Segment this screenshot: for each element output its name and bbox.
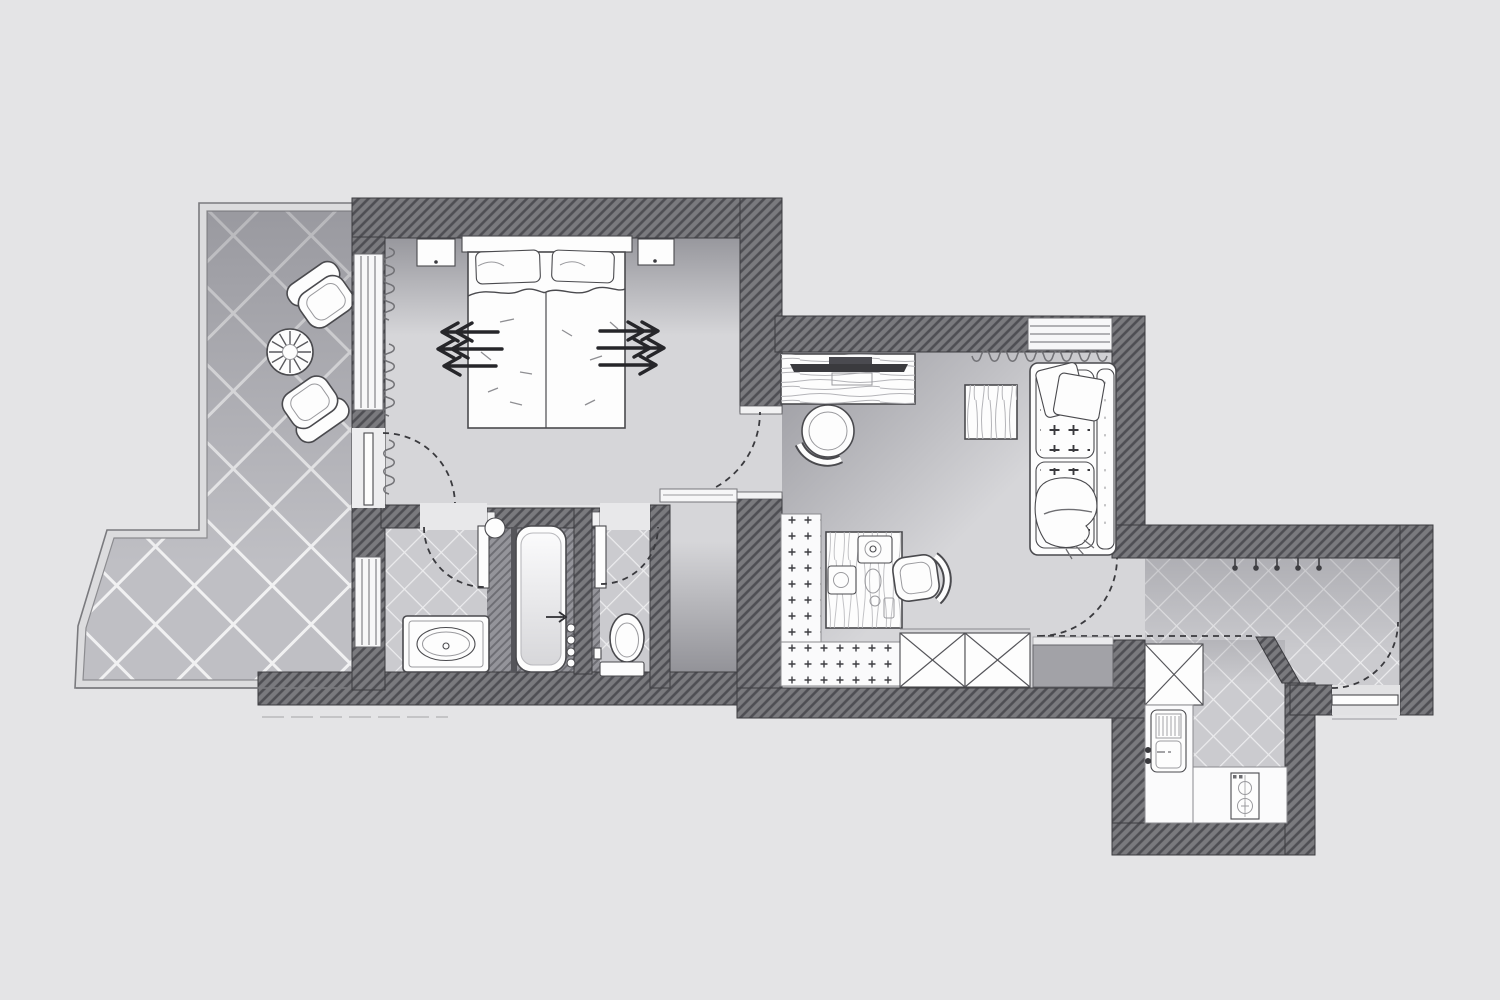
vanity-door-leaf bbox=[478, 526, 489, 588]
coffee-machine-1-button bbox=[870, 546, 876, 552]
bed-arrows-right bbox=[598, 322, 664, 374]
sink-knob-1 bbox=[1145, 747, 1151, 753]
living-window bbox=[1028, 318, 1112, 350]
sofa-throw-blanket bbox=[1035, 478, 1097, 548]
inner-hall-shading bbox=[670, 505, 737, 688]
tub-knob-4 bbox=[567, 659, 575, 667]
wall-wc-right bbox=[650, 505, 670, 688]
tub-knob-1 bbox=[567, 624, 575, 632]
wall-end-cap bbox=[592, 512, 600, 526]
kitchen-sink-unit bbox=[1145, 710, 1186, 772]
entrance-door-leaf bbox=[1332, 695, 1398, 705]
bed-headboard bbox=[462, 236, 632, 252]
floor-plan-canvas bbox=[0, 0, 1500, 1000]
coffee-table bbox=[965, 385, 1017, 439]
side-chair bbox=[891, 553, 947, 603]
rug-horizontal-pattern bbox=[781, 642, 901, 686]
toilet-paper-holder bbox=[594, 648, 601, 659]
bed-pillow-left bbox=[475, 250, 540, 284]
tub-stool bbox=[485, 518, 505, 538]
tv-desk-group bbox=[781, 354, 915, 404]
tv-screen-bar bbox=[790, 364, 908, 372]
terrace-wicker-table bbox=[267, 329, 313, 375]
minibar-table-group bbox=[826, 532, 902, 628]
vanity-drain bbox=[443, 643, 449, 649]
desk-chair-seat bbox=[802, 405, 854, 457]
wall-living-right-upper bbox=[1112, 316, 1145, 558]
wall-hall-top bbox=[1112, 525, 1433, 558]
terrace-door-leaf bbox=[364, 433, 373, 505]
coffee-table-woodgrain bbox=[965, 385, 1017, 439]
sofa-group bbox=[1030, 362, 1116, 559]
vanity-unit bbox=[403, 616, 489, 672]
side-chair-seat bbox=[891, 553, 941, 603]
vanity-door-opening bbox=[420, 503, 487, 530]
tub-knob-3 bbox=[567, 648, 575, 656]
sofa-pillow-2 bbox=[1053, 372, 1106, 421]
hall-closet bbox=[1145, 644, 1203, 705]
bedroom-hall-sill bbox=[660, 489, 737, 502]
wall-bedroom-top bbox=[352, 198, 778, 238]
coffee-machine-2 bbox=[828, 566, 856, 594]
wall-end-cap bbox=[740, 406, 782, 414]
bed-pillow-right bbox=[551, 250, 614, 283]
wall-bath-top-left bbox=[381, 505, 422, 528]
nightstand-right-knob bbox=[653, 259, 657, 263]
floor-plan-drawing bbox=[0, 0, 1500, 1000]
rug-vertical-pattern bbox=[781, 514, 821, 642]
wall-living-west bbox=[737, 496, 782, 718]
wall-hall-bottom-left bbox=[1290, 685, 1332, 715]
bathtub-inner bbox=[521, 533, 561, 665]
wc-door-opening bbox=[600, 503, 650, 530]
wardrobes bbox=[900, 629, 1030, 687]
kitchen-stove bbox=[1231, 773, 1259, 819]
wall-living-bottom bbox=[737, 688, 1145, 718]
sideboard bbox=[1033, 637, 1113, 687]
bed-arrows-left bbox=[438, 323, 502, 375]
bedroom-window bbox=[354, 254, 383, 410]
tub-knob-2 bbox=[567, 636, 575, 644]
stove-knob-a bbox=[1233, 775, 1237, 779]
stove-knob-b bbox=[1239, 775, 1243, 779]
wall-tub-niche-right bbox=[574, 508, 592, 674]
nightstand-left-knob bbox=[434, 260, 438, 264]
wc-door-leaf bbox=[595, 526, 606, 588]
wall-end-cap bbox=[737, 492, 782, 499]
wall-bedroom-right-upper bbox=[740, 198, 782, 412]
wall-hall-east bbox=[1400, 525, 1433, 715]
sideboard-top-edge bbox=[1033, 637, 1113, 645]
sideboard-body bbox=[1033, 645, 1113, 687]
sink-knob-2 bbox=[1145, 758, 1151, 764]
bathroom-window bbox=[355, 557, 381, 647]
toilet-cistern bbox=[600, 662, 644, 676]
